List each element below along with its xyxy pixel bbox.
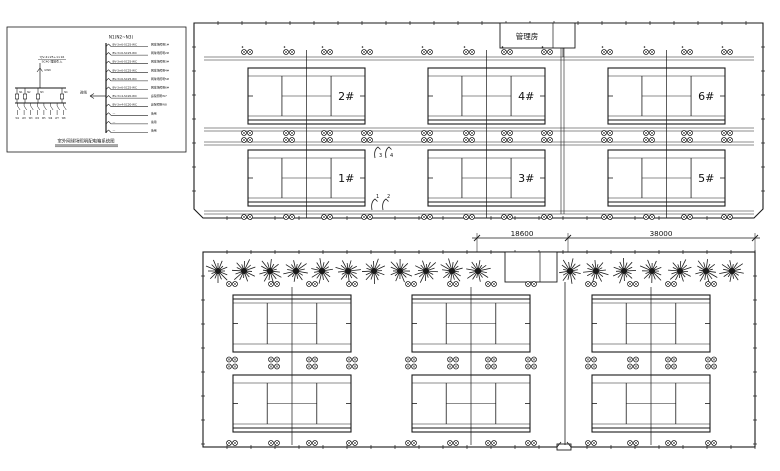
floodlight-icon <box>422 215 433 220</box>
court-number: 6# <box>698 90 714 103</box>
tree-branch <box>232 270 242 271</box>
switch-blade <box>44 106 47 110</box>
floodlight-icon <box>422 131 433 143</box>
floodlight-icon <box>542 131 553 143</box>
tree-trunk <box>703 268 709 274</box>
floodlight-icon <box>502 131 513 143</box>
load-name: 备用 <box>151 120 157 124</box>
floodlight-icon <box>422 46 433 54</box>
contactor <box>36 94 39 99</box>
floodlight-icon <box>722 215 733 220</box>
tree-icon <box>206 260 227 283</box>
floodlight-icon <box>406 282 417 287</box>
contactor <box>60 94 63 99</box>
floodlight-icon <box>464 46 475 54</box>
pole-dot <box>682 46 684 48</box>
pole-dot <box>422 46 424 48</box>
upper-site-plan: 2#1#4#3#6#5#3412 <box>192 21 765 220</box>
pole-dot <box>722 46 724 48</box>
incoming-cable-label-2: SC40 埋地引入 <box>42 58 63 63</box>
cable-designation: BV-3×4-SC20-WC <box>113 103 137 107</box>
tree-icon <box>362 259 385 284</box>
floodlight-icon <box>526 441 537 446</box>
line <box>37 68 40 72</box>
floodlight-icon <box>242 215 253 220</box>
tree-icon <box>668 259 691 281</box>
pole-dot <box>542 46 544 48</box>
floodlight-icon <box>644 131 655 143</box>
panel-title: N1(N2~N3) <box>109 35 134 40</box>
tree-trunk <box>649 268 655 274</box>
floodlight-icon <box>464 215 475 220</box>
floodlight-icon <box>666 282 677 287</box>
tree-trunk <box>449 268 455 274</box>
floodlight-icon <box>347 357 358 369</box>
pole-dot <box>602 46 604 48</box>
tree-trunk <box>593 268 599 274</box>
floodlight-icon <box>486 441 497 446</box>
floodlight-icon <box>706 441 717 446</box>
tree-trunk <box>621 268 627 274</box>
floodlight-icon <box>242 46 253 54</box>
court-number: 3# <box>518 172 534 185</box>
contactor <box>15 94 18 99</box>
floodlight-icon <box>347 282 358 287</box>
floodlight-icon <box>644 46 655 54</box>
distribution-panel-schematic: N1N2N3N4W1W2W3W4W5W6W7W8BV-3×6-SC25-WC网球… <box>7 27 186 152</box>
pole-dot <box>502 46 504 48</box>
callout-hook <box>372 199 378 210</box>
tree-trunk <box>475 268 481 274</box>
cable-designation: BV-3×6-SC25-WC <box>113 77 137 81</box>
floodlight-icon <box>602 131 613 143</box>
tree-trunk <box>397 268 403 274</box>
branch-label: N4 <box>64 91 68 94</box>
tree-trunk <box>267 268 273 274</box>
tree-icon <box>441 258 463 282</box>
circuit-row: BV-3×6-SC25-WC网球场照明1# <box>106 43 170 47</box>
breaker-symbol <box>106 121 111 124</box>
breaker-symbol <box>106 61 111 64</box>
tree-trunk <box>215 268 221 274</box>
incoming-cable-label-1: YJV-4×25+1×16 <box>40 55 65 59</box>
tree-icon <box>259 259 281 283</box>
tree-icon <box>336 260 361 281</box>
floodlight-icon <box>542 215 553 220</box>
floodlight-icon <box>628 282 639 287</box>
tree-branch <box>583 271 594 272</box>
tree-icon <box>695 259 717 283</box>
callout-number: 2 <box>387 194 390 200</box>
tree-branch <box>362 271 372 272</box>
tree-icon <box>232 259 255 281</box>
switch-blade <box>64 106 67 110</box>
tree-branch <box>668 270 678 271</box>
load-name: 备用 <box>151 129 157 133</box>
tree-branch <box>349 270 360 271</box>
tree-icon <box>391 259 412 282</box>
breaker-symbol <box>106 130 111 133</box>
line <box>90 94 94 97</box>
tree-trunk <box>241 268 247 274</box>
switch-blade <box>31 106 34 110</box>
terminal-label: W6 <box>49 117 53 120</box>
floodlight-icon <box>284 131 295 143</box>
switch-blade <box>51 106 54 110</box>
breaker-symbol <box>106 78 111 81</box>
cable-designation: BV-3×6-SC25-WC <box>113 86 137 90</box>
tree-icon <box>719 260 744 282</box>
cable-designation: — <box>113 129 116 133</box>
floodlight-icon <box>682 131 693 143</box>
circuit-row: —备用 <box>106 120 157 124</box>
line <box>40 68 43 72</box>
lower-site-plan <box>201 250 757 450</box>
tree-icon <box>559 258 581 283</box>
callout-number: 4 <box>390 153 393 159</box>
floodlight-icon <box>448 357 459 369</box>
floodlight-icon <box>486 357 497 369</box>
floodlight-icon <box>502 215 513 220</box>
tree-trunk <box>345 268 351 274</box>
branch-label: N1 <box>19 91 23 94</box>
floodlight-icon <box>628 441 639 446</box>
floodlight-icon <box>269 357 280 369</box>
floodlight-icon <box>682 46 693 54</box>
tree-trunk <box>293 268 299 274</box>
court-number: 1# <box>338 172 354 185</box>
load-name: 网球场照明2# <box>151 51 170 55</box>
floodlight-icon <box>628 357 639 369</box>
meter-label: kWh <box>45 68 52 72</box>
floodlight-icon <box>722 46 733 54</box>
cad-drawing-canvas: N1N2N3N4W1W2W3W4W5W6W7W8BV-3×6-SC25-WC网球… <box>0 0 780 471</box>
floodlight-icon <box>406 357 417 369</box>
circuit-row: BV-3×4-SC20-WC庭院照明W7 <box>106 94 167 98</box>
circuit-row: BV-3×6-SC25-WC网球场照明2# <box>106 51 170 55</box>
kiosk-structure <box>505 252 557 282</box>
schematic-bottom-title: 室外网球场照明配电箱系统图 <box>57 138 115 145</box>
floodlight-icon <box>227 441 238 446</box>
floodlight-icon <box>322 131 333 143</box>
breaker-symbol <box>106 104 111 107</box>
cable-designation: BV-3×6-SC25-WC <box>113 43 137 47</box>
load-name: 网球场照明3# <box>151 60 170 64</box>
incoming-arrow-label: 进线 <box>80 90 88 95</box>
floodlight-icon <box>242 131 253 143</box>
floodlight-icon <box>666 357 677 369</box>
callout-number: 1 <box>376 194 379 200</box>
dimension-label-38000: 38000 <box>650 229 673 238</box>
tree-icon <box>283 260 308 282</box>
cable-designation: — <box>113 120 116 124</box>
circuit-row: —备用 <box>106 129 157 133</box>
terminal-label: W7 <box>55 117 59 120</box>
switch-blade <box>24 106 27 110</box>
contactor <box>23 94 26 99</box>
cable-designation: BV-3×4-SC20-WC <box>113 94 137 98</box>
pole-dot <box>322 46 324 48</box>
cable-designation: BV-3×6-SC25-WC <box>113 68 137 72</box>
tree-branch <box>374 272 375 283</box>
floodlight-icon <box>322 46 333 54</box>
pole-dot <box>464 46 466 48</box>
switch-blade <box>57 106 60 110</box>
pole-dot <box>242 46 244 48</box>
floodlight-icon <box>269 282 280 287</box>
floodlight-icon <box>284 46 295 54</box>
floodlight-icon <box>362 46 373 54</box>
line <box>90 96 94 99</box>
tree-icon <box>613 258 636 283</box>
floodlight-icon <box>269 441 280 446</box>
load-name: 网球场照明5# <box>151 77 170 81</box>
floodlight-icon <box>666 441 677 446</box>
floodlight-icon <box>307 441 318 446</box>
breaker-symbol <box>106 113 111 116</box>
circuit-row: —备用 <box>106 111 157 115</box>
floodlight-icon <box>602 46 613 54</box>
breaker-symbol <box>106 96 111 99</box>
floodlight-icon <box>602 215 613 220</box>
floodlight-icon <box>322 215 333 220</box>
floodlight-icon <box>448 441 459 446</box>
floodlight-icon <box>406 441 417 446</box>
circuit-row: BV-3×6-SC25-WC网球场照明6# <box>106 86 170 90</box>
floodlight-icon <box>526 357 537 369</box>
terminal-label: W2 <box>22 117 26 120</box>
circuit-row: BV-3×6-SC25-WC网球场照明3# <box>106 60 170 64</box>
floodlight-icon <box>362 131 373 143</box>
floodlight-icon <box>586 282 597 287</box>
load-name: 网球场照明1# <box>151 43 170 47</box>
load-name: 网球场照明6# <box>151 86 170 90</box>
tree-branch <box>270 259 271 269</box>
callout-number: 3 <box>379 153 382 159</box>
floodlight-icon <box>227 282 238 287</box>
terminal-label: W4 <box>35 117 39 120</box>
floodlight-icon <box>644 215 655 220</box>
floodlight-icon <box>362 215 373 220</box>
load-name: 备用 <box>151 111 157 115</box>
court-number: 5# <box>698 172 714 185</box>
terminal-label: W5 <box>42 117 46 120</box>
floodlight-icon <box>284 215 295 220</box>
tree-trunk <box>371 268 377 274</box>
terminal-label: W3 <box>29 117 33 120</box>
floodlight-icon <box>448 282 459 287</box>
pole-dot <box>644 46 646 48</box>
switch-blade <box>37 106 40 110</box>
floodlight-icon <box>682 215 693 220</box>
branch-label: N2 <box>27 91 31 94</box>
circuit-row: BV-3×4-SC20-WC庭院照明W8 <box>106 103 167 107</box>
breaker-symbol <box>106 53 111 56</box>
floodlight-icon <box>347 441 358 446</box>
tree-icon <box>640 260 661 283</box>
load-name: 网球场照明4# <box>151 68 170 72</box>
court-number: 4# <box>518 90 534 103</box>
tree-icon <box>415 261 438 283</box>
floodlight-icon <box>486 282 497 287</box>
load-name: 庭院照明W8 <box>151 103 167 107</box>
terminal-label: W8 <box>62 117 66 120</box>
load-name: 庭院照明W7 <box>151 94 167 98</box>
tree-icon <box>583 260 608 282</box>
floodlight-icon <box>307 282 318 287</box>
tree-icon <box>311 258 333 283</box>
breaker-symbol <box>106 44 111 47</box>
cable-designation: — <box>113 111 116 115</box>
floodlight-icon <box>464 131 475 143</box>
dimension-label-18600: 18600 <box>511 229 534 238</box>
floodlight-icon <box>586 357 597 369</box>
floodlight-icon <box>706 282 717 287</box>
tree-trunk <box>319 268 325 274</box>
tree-trunk <box>677 268 683 274</box>
tree-trunk <box>567 268 573 274</box>
switch-blade <box>18 106 21 110</box>
breaker-symbol <box>106 70 111 73</box>
floodlight-icon <box>706 357 717 369</box>
pole-dot <box>284 46 286 48</box>
floodlight-icon <box>307 357 318 369</box>
tree-icon <box>466 260 491 282</box>
floodlight-icon <box>722 131 733 143</box>
branch-label: N3 <box>40 91 44 94</box>
court-number: 2# <box>338 90 354 103</box>
floodlight-icon <box>586 441 597 446</box>
floodlight-icon <box>227 357 238 369</box>
tree-branch <box>427 271 437 272</box>
cable-designation: BV-3×6-SC25-WC <box>113 51 137 55</box>
circuit-row: BV-3×6-SC25-WC网球场照明5# <box>106 77 170 81</box>
callout-hook <box>383 199 389 210</box>
pole-dot <box>362 46 364 48</box>
terminal-label: W1 <box>16 117 20 120</box>
tree-trunk <box>729 268 735 274</box>
breaker-symbol <box>106 87 111 90</box>
tree-trunk <box>423 268 429 274</box>
circuit-row: BV-3×6-SC25-WC网球场照明4# <box>106 68 170 72</box>
management-room-label: 管理房 <box>516 31 539 41</box>
cable-designation: BV-3×6-SC25-WC <box>113 60 137 64</box>
